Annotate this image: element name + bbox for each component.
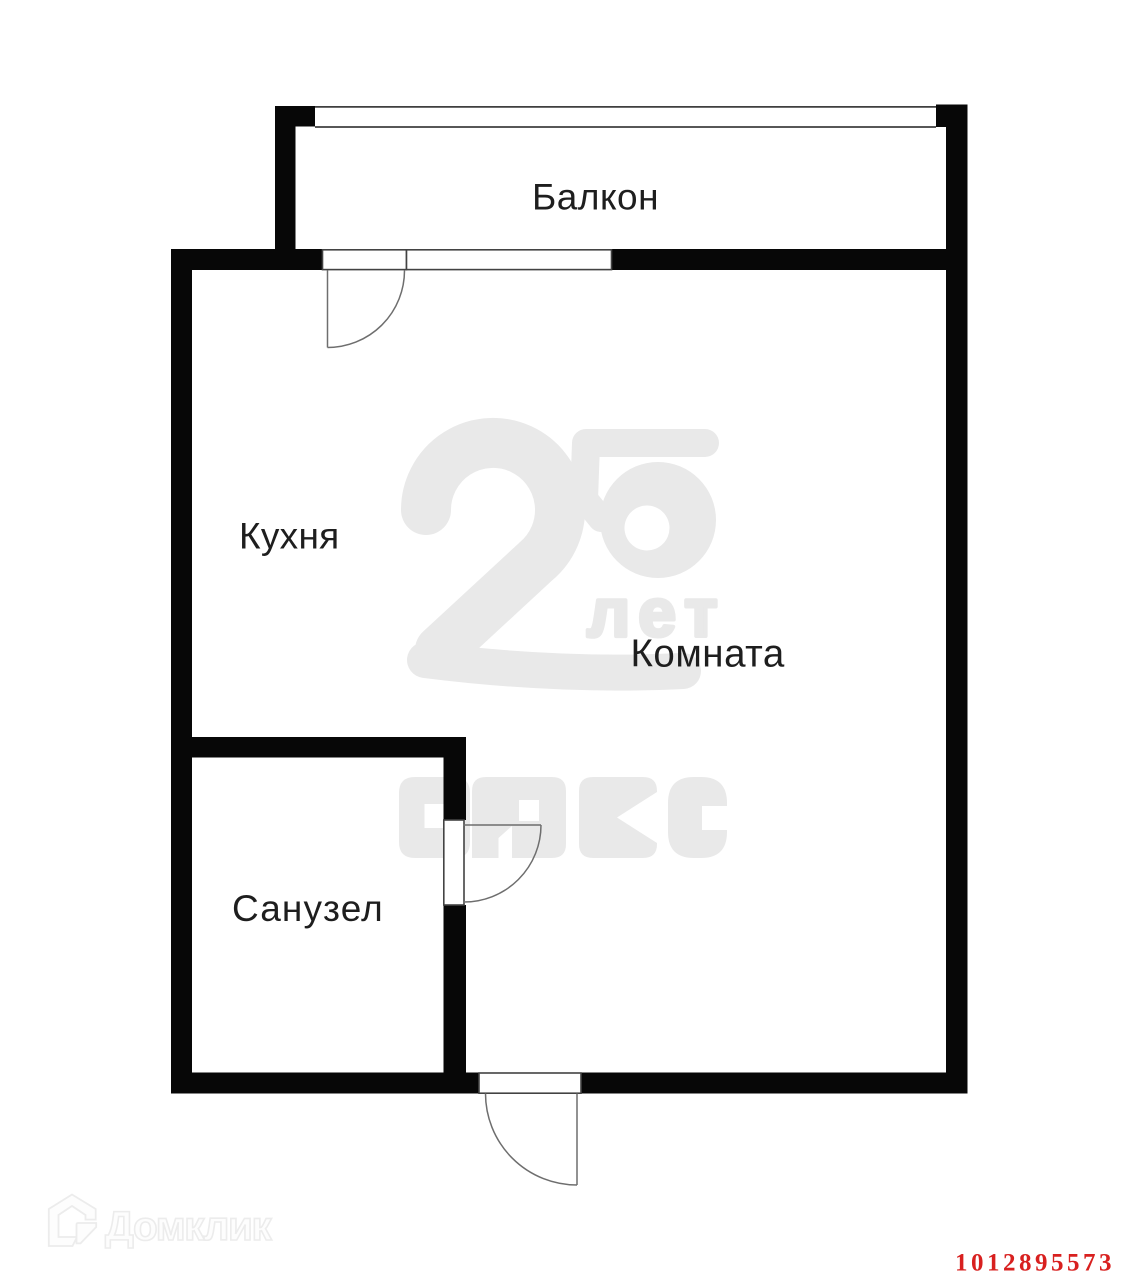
svg-text:Комната: Комната <box>631 633 785 676</box>
svg-text:Балкон: Балкон <box>532 177 659 218</box>
svg-text:Кухня: Кухня <box>239 516 340 557</box>
svg-text:Санузел: Санузел <box>232 888 384 929</box>
svg-text:Домклик: Домклик <box>105 1203 273 1249</box>
svg-text:1012895573: 1012895573 <box>955 1250 1115 1277</box>
